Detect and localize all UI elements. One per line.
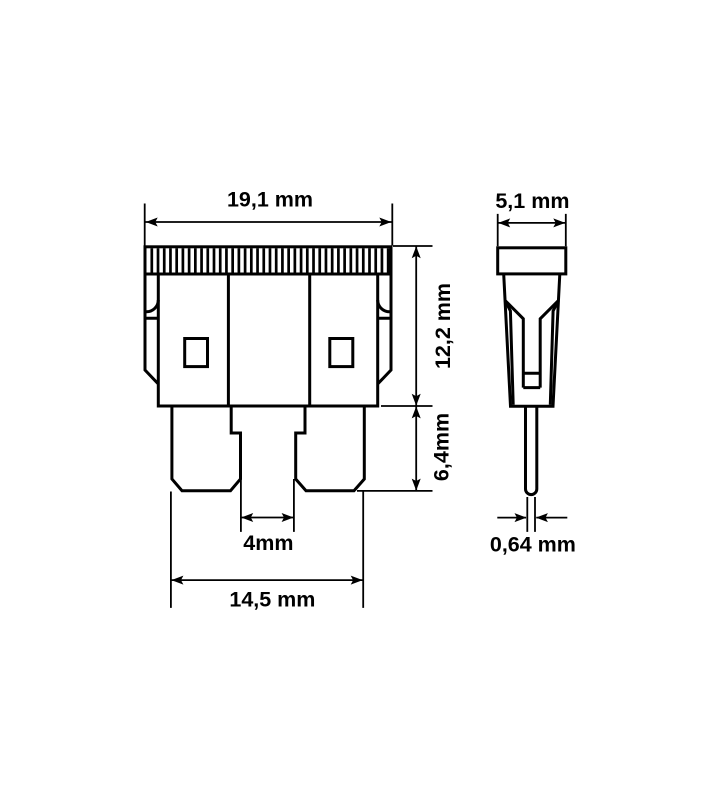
svg-text:14,5 mm: 14,5 mm (229, 588, 315, 612)
svg-text:0,64 mm: 0,64 mm (490, 532, 576, 556)
svg-text:5,1 mm: 5,1 mm (495, 189, 569, 213)
svg-text:4mm: 4mm (243, 531, 293, 555)
svg-text:12,2 mm: 12,2 mm (431, 283, 455, 369)
svg-text:6,4mm: 6,4mm (430, 413, 454, 481)
svg-text:19,1 mm: 19,1 mm (227, 188, 313, 212)
